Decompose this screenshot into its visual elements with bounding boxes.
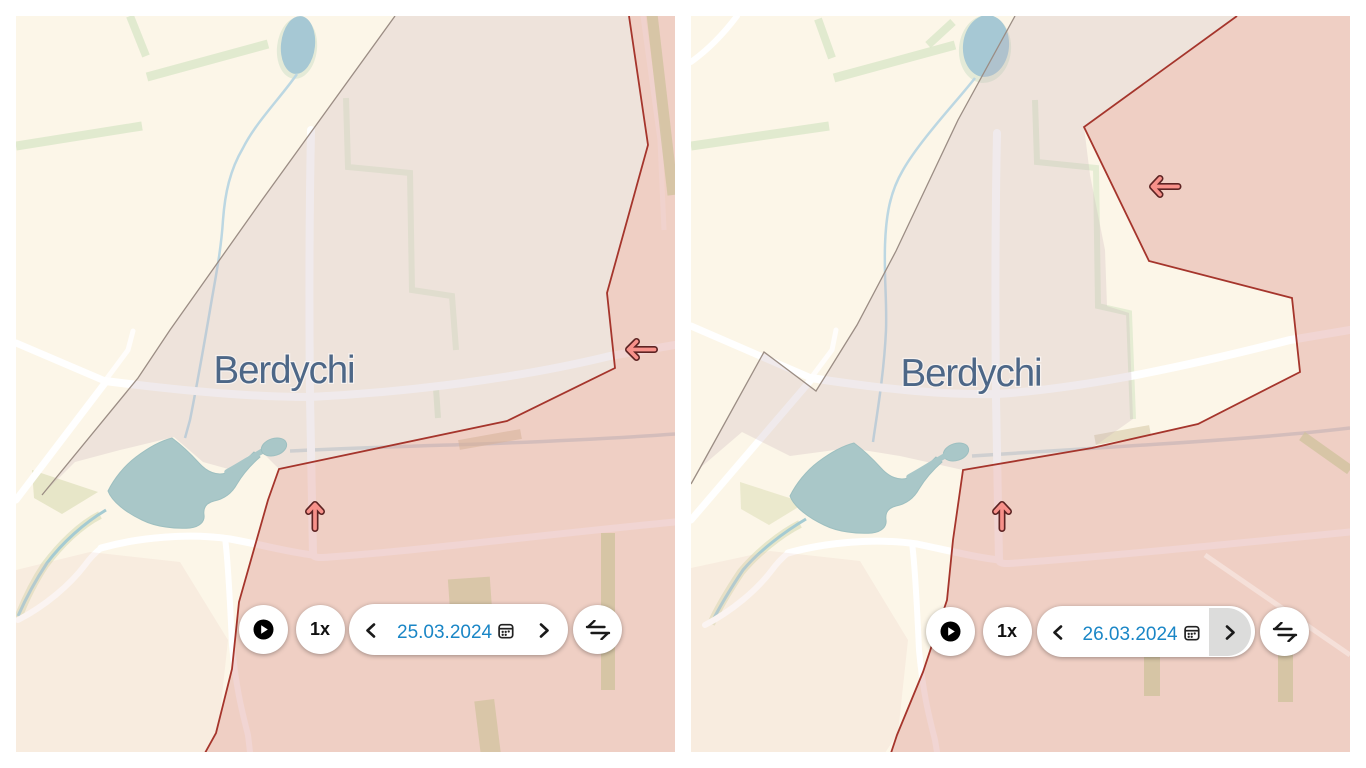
- svg-text:Berdychi: Berdychi: [214, 349, 355, 392]
- svg-text:Berdychi: Berdychi: [901, 352, 1042, 395]
